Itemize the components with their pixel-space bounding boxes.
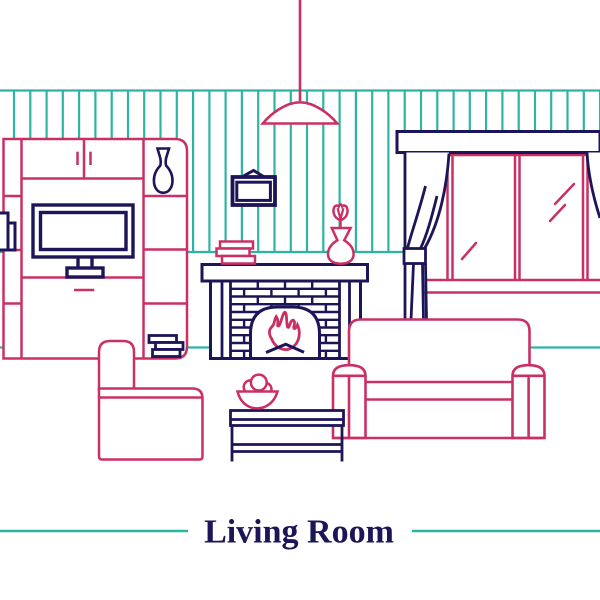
- svg-text:Living Room: Living Room: [204, 514, 394, 551]
